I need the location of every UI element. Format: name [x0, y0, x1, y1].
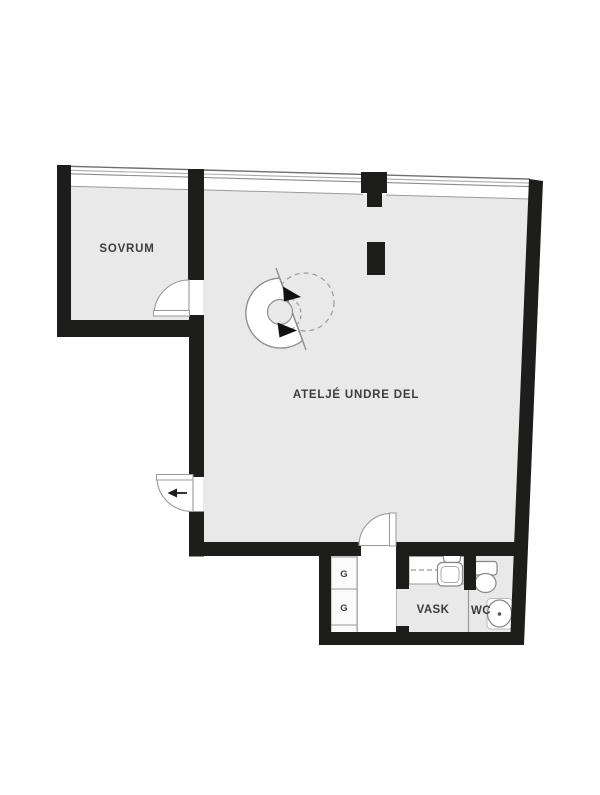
floorplan-drawing: SOVRUM ATELJÉ UNDRE DEL VASK WC G G	[0, 0, 600, 795]
door-sovrum-leaf	[154, 311, 190, 317]
wardrobe-shelf	[331, 625, 357, 633]
window-atelje-right	[386, 175, 530, 199]
door-entrance	[157, 475, 194, 512]
label-closet-bottom: G	[340, 603, 347, 614]
label-wc: WC	[471, 605, 491, 617]
door-corridor-leaf	[390, 513, 397, 546]
wall-left	[57, 165, 71, 337]
window-atelje-left	[203, 170, 363, 194]
wall-vask-wc-divider	[464, 556, 476, 590]
wall-strip-left	[319, 556, 331, 645]
wall-chimney-column	[367, 242, 385, 275]
wall-mid-left	[189, 315, 204, 477]
label-closet-top: G	[340, 569, 347, 580]
wall-vask-left-upper	[396, 556, 409, 589]
label-atelje: ATELJÉ UNDRE DEL	[293, 388, 419, 401]
floorplan-page: SOVRUM ATELJÉ UNDRE DEL VASK WC G G	[0, 0, 600, 795]
toilet-bowl-icon	[475, 574, 496, 593]
wall-bottom-left-seg	[189, 542, 361, 556]
wall-vask-left-lower	[396, 626, 409, 638]
label-vask: VASK	[417, 604, 450, 616]
label-sovrum: SOVRUM	[99, 243, 154, 255]
wall-strip-bottom	[319, 632, 524, 645]
floor-atelje	[203, 190, 530, 543]
stair-center-hole	[268, 300, 293, 325]
corridor-floor	[358, 545, 397, 633]
door-entrance-leaf	[157, 475, 194, 481]
window-sovrum	[70, 166, 189, 189]
washbasin-drain-dot	[498, 612, 502, 616]
wall-bottom-right-seg	[396, 542, 518, 556]
wall-divider-top	[188, 169, 204, 280]
wall-sovrum-bottom	[57, 320, 204, 337]
